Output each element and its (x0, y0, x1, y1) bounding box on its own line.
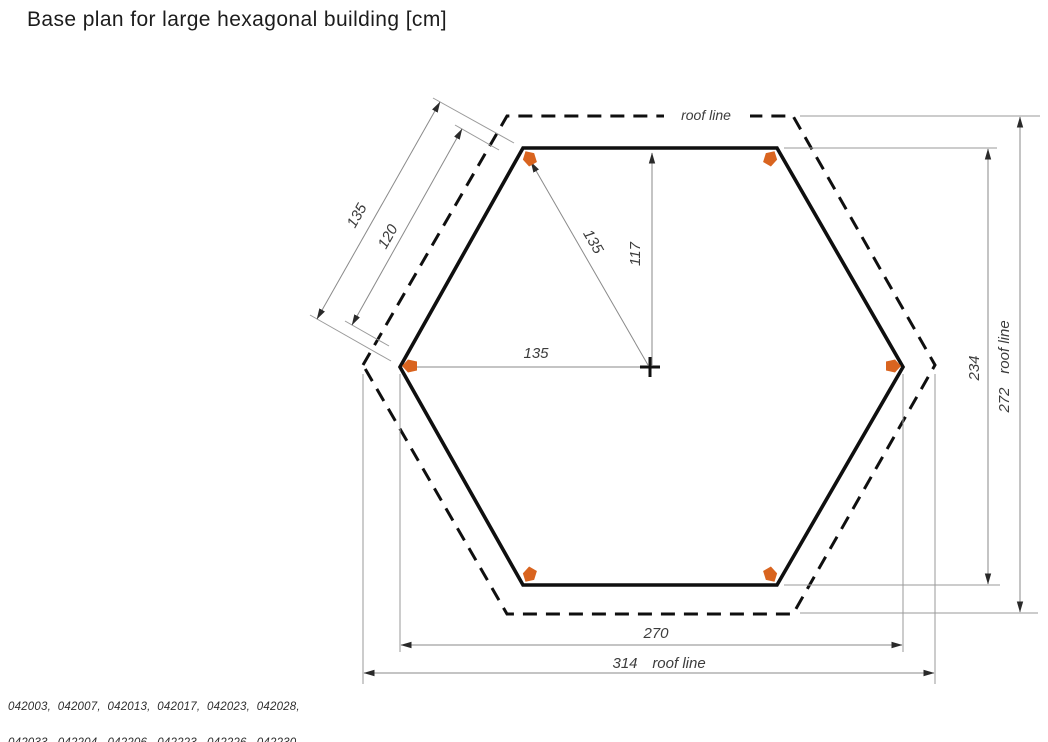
dim-text-wall-height-234: 234 (966, 355, 983, 381)
extension-upperleft-inner-b (455, 125, 499, 150)
center-cross (640, 357, 660, 377)
dim-text-roof-edge-135: 135 (344, 200, 371, 231)
dim-line-wall-edge-120 (352, 129, 462, 325)
dimension-lines (317, 102, 1020, 673)
dim-text-roof-width-314: 314 (612, 655, 637, 672)
dim-text-radius-horizontal-135: 135 (523, 345, 549, 362)
base-plan-page: Base plan for large hexagonal building [… (0, 0, 1048, 742)
hexagonal-building-plan-drawing: roof line (0, 0, 1048, 742)
dim-text-wall-width-270: 270 (642, 625, 669, 642)
roof-line-top-label: roof line (681, 107, 731, 123)
dim-text-center-height-117: 117 (627, 241, 644, 266)
extension-upperleft-outer-b (433, 98, 514, 143)
dim-text-roof-height-label: roof line (996, 320, 1013, 373)
dim-text-roof-height-272: 272 (996, 387, 1013, 414)
product-code-line: 042003, 042007, 042013, 042017, 042023, … (8, 701, 300, 713)
dim-text-roof-width-label: roof line (652, 655, 705, 672)
dim-line-roof-edge-135 (317, 102, 440, 319)
extension-lines (310, 98, 1040, 684)
product-code-line: 042033, 042204, 042206, 042223, 042226, … (8, 737, 300, 742)
dim-text-wall-edge-120: 120 (375, 221, 402, 252)
product-code-list: 042003, 042007, 042013, 042017, 042023, … (8, 676, 300, 742)
